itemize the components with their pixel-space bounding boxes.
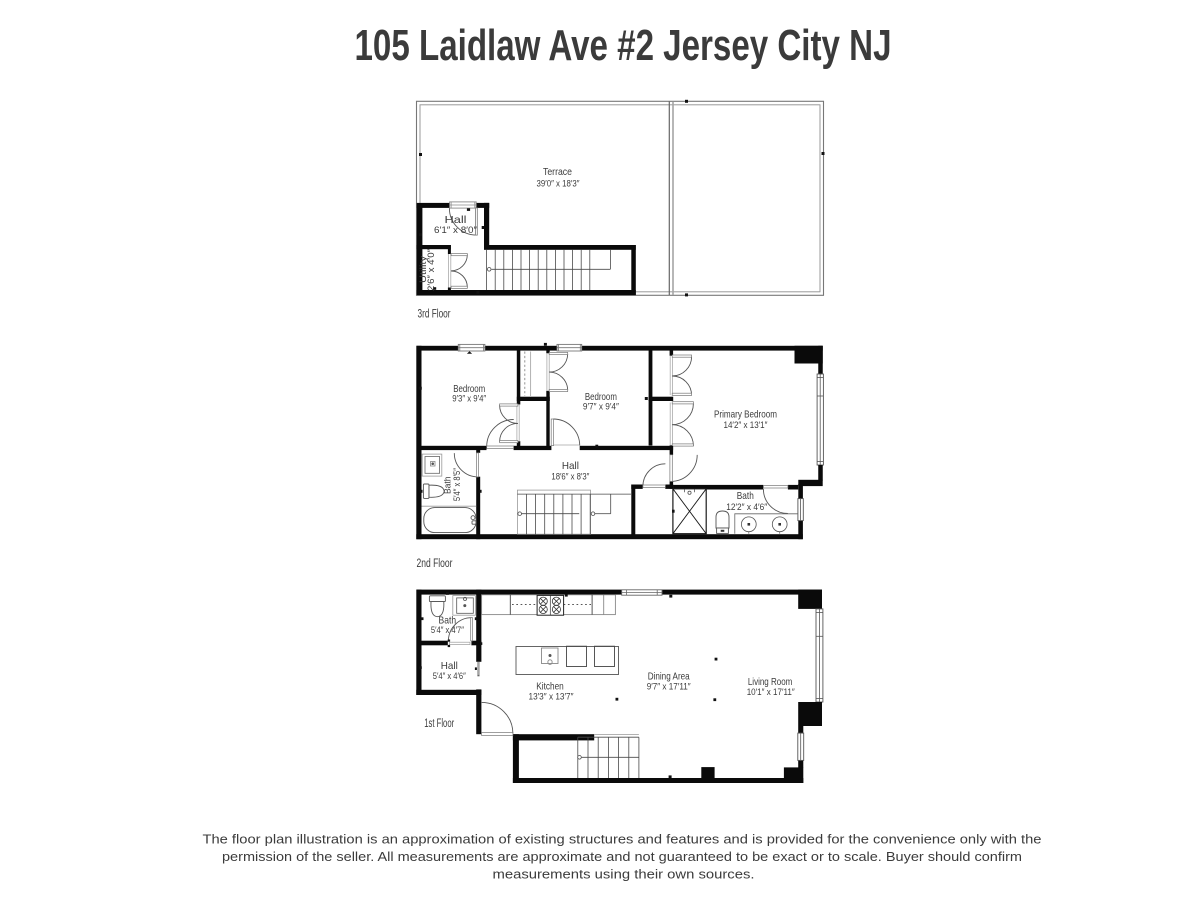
svg-text:The floor plan illustration is: The floor plan illustration is an approx… xyxy=(203,833,1042,847)
svg-text:2nd Floor: 2nd Floor xyxy=(417,558,453,570)
svg-text:9′7″ x 17′11″: 9′7″ x 17′11″ xyxy=(647,681,692,692)
svg-text:12′2″ x 4′6″: 12′2″ x 4′6″ xyxy=(726,502,768,513)
svg-text:10′1″ x 17′11″: 10′1″ x 17′11″ xyxy=(747,687,796,698)
svg-text:13′3″ x 13′7″: 13′3″ x 13′7″ xyxy=(529,691,575,702)
svg-text:5′4″ x 8′5″: 5′4″ x 8′5″ xyxy=(452,467,462,501)
svg-text:18′6″ x 8′3″: 18′6″ x 8′3″ xyxy=(551,472,589,483)
svg-text:Bath: Bath xyxy=(737,491,754,502)
svg-text:Primary Bedroom: Primary Bedroom xyxy=(714,410,777,421)
svg-text:9′7″ x 9′4″: 9′7″ x 9′4″ xyxy=(583,402,620,413)
svg-text:1st Floor: 1st Floor xyxy=(424,718,454,730)
svg-text:3rd Floor: 3rd Floor xyxy=(418,309,451,321)
svg-text:permission of the seller. All: permission of the seller. All measuremen… xyxy=(222,850,1022,864)
svg-text:Hall: Hall xyxy=(562,461,579,472)
svg-text:2′6″ x 4′0″: 2′6″ x 4′0″ xyxy=(426,248,436,291)
svg-text:5′4″ x 4′7″: 5′4″ x 4′7″ xyxy=(431,625,464,636)
svg-text:9′3″ x 9′4″: 9′3″ x 9′4″ xyxy=(452,394,486,405)
svg-text:6′1″ x 8′0″: 6′1″ x 8′0″ xyxy=(434,225,478,236)
svg-text:14′2″ x 13′1″: 14′2″ x 13′1″ xyxy=(724,420,768,431)
svg-text:5′4″ x 4′6″: 5′4″ x 4′6″ xyxy=(433,671,466,682)
svg-text:105 Laidlaw Ave #2 Jersey City: 105 Laidlaw Ave #2 Jersey City NJ xyxy=(355,21,892,70)
svg-text:measurements using their own s: measurements using their own sources. xyxy=(493,868,755,882)
svg-text:39′0″ x 18′3″: 39′0″ x 18′3″ xyxy=(537,179,580,190)
svg-text:Terrace: Terrace xyxy=(543,167,572,178)
svg-text:Hall: Hall xyxy=(445,215,467,226)
